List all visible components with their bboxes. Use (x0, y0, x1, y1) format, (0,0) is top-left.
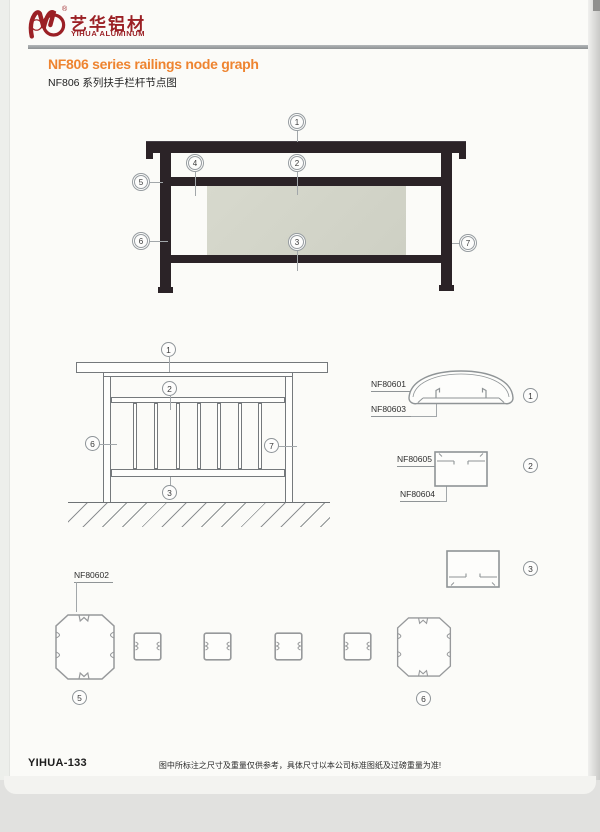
leader-line (446, 486, 447, 501)
detail-callout-1: 1 (523, 388, 538, 403)
paper-right-edge (588, 0, 600, 780)
baluster (258, 403, 262, 469)
detail-callout-3: 3 (523, 561, 538, 576)
leader-line (169, 357, 170, 372)
callout-1: 1 (161, 342, 176, 357)
baluster-profile-section (133, 632, 162, 661)
post-right-outline (285, 376, 293, 503)
callout-3: 3 (288, 233, 306, 251)
baluster (154, 403, 158, 469)
baluster (176, 403, 180, 469)
leader-line (440, 501, 447, 502)
callout-2: 2 (288, 154, 306, 172)
baluster (197, 403, 201, 469)
bottom-rail (165, 255, 447, 263)
handrail-profile-section (405, 367, 517, 411)
handrail-top (146, 141, 466, 153)
handrail-end-right (459, 152, 466, 159)
page-title-en: NF806 series railings node graph (48, 56, 259, 72)
leader-line (297, 172, 298, 195)
paper-left-edge-line (9, 0, 10, 780)
post-left (160, 152, 171, 292)
post-profile-section-6 (394, 611, 454, 683)
paper-corner-shadow (593, 0, 600, 11)
callout-7: 7 (264, 438, 279, 453)
post-left-outline (103, 376, 111, 503)
callout-4: 4 (186, 154, 204, 172)
header-divider (28, 45, 595, 49)
paper-under-sheet (4, 776, 596, 794)
page-code: YIHUA-133 (28, 757, 87, 769)
callout-6: 6 (132, 232, 150, 250)
page-title-cn: NF806 系列扶手栏杆节点图 (48, 75, 177, 90)
catalog-page: ® 艺华铝材 YIHUA ALUMINUM NF806 series raili… (0, 0, 600, 780)
channel-profile-section (446, 550, 500, 588)
leader-line (170, 396, 171, 410)
part-label: NF80605 (397, 455, 436, 467)
footer-note: 图中所标注之尺寸及重量仅供参考，具体尺寸以本公司标准图纸及过磅重量为准! (110, 760, 490, 771)
post-left-foot (158, 287, 173, 293)
baluster (133, 403, 137, 469)
registered-mark: ® (62, 6, 67, 13)
baluster-profile-section (203, 632, 232, 661)
part-label: NF80602 (74, 571, 113, 583)
mid-rail (165, 177, 447, 186)
callout-3: 3 (162, 485, 177, 500)
leader-line (297, 251, 298, 271)
post-right (441, 152, 452, 290)
callout-5: 5 (132, 173, 150, 191)
channel-profile-section (434, 451, 488, 487)
handrail-base-outline (103, 372, 293, 377)
baluster (238, 403, 242, 469)
leader-line (76, 582, 77, 612)
glass-panel (207, 186, 406, 255)
post-profile-section-5 (52, 611, 118, 683)
callout-1: 1 (288, 113, 306, 131)
part-label: NF80604 (400, 490, 442, 502)
callout-6: 6 (85, 436, 100, 451)
leader-line (411, 416, 437, 417)
brand-name-en: YIHUA ALUMINUM (71, 29, 145, 38)
leader-line (100, 444, 117, 445)
post-right-foot (439, 285, 454, 291)
baluster-profile-section (343, 632, 372, 661)
ground-hatch (68, 503, 330, 527)
handrail-end-left (146, 152, 153, 159)
baluster (217, 403, 221, 469)
leader-line (150, 182, 163, 183)
brand-logo-icon (28, 7, 66, 43)
callout-7: 7 (459, 234, 477, 252)
leader-line (279, 446, 297, 447)
leader-line (195, 172, 196, 196)
callout-2: 2 (162, 381, 177, 396)
baluster-profile-section (274, 632, 303, 661)
detail-callout-5: 5 (72, 690, 87, 705)
detail-callout-2: 2 (523, 458, 538, 473)
detail-callout-6: 6 (416, 691, 431, 706)
leader-line (297, 131, 298, 142)
bottom-rail-outline (111, 469, 285, 477)
leader-line (150, 241, 168, 242)
